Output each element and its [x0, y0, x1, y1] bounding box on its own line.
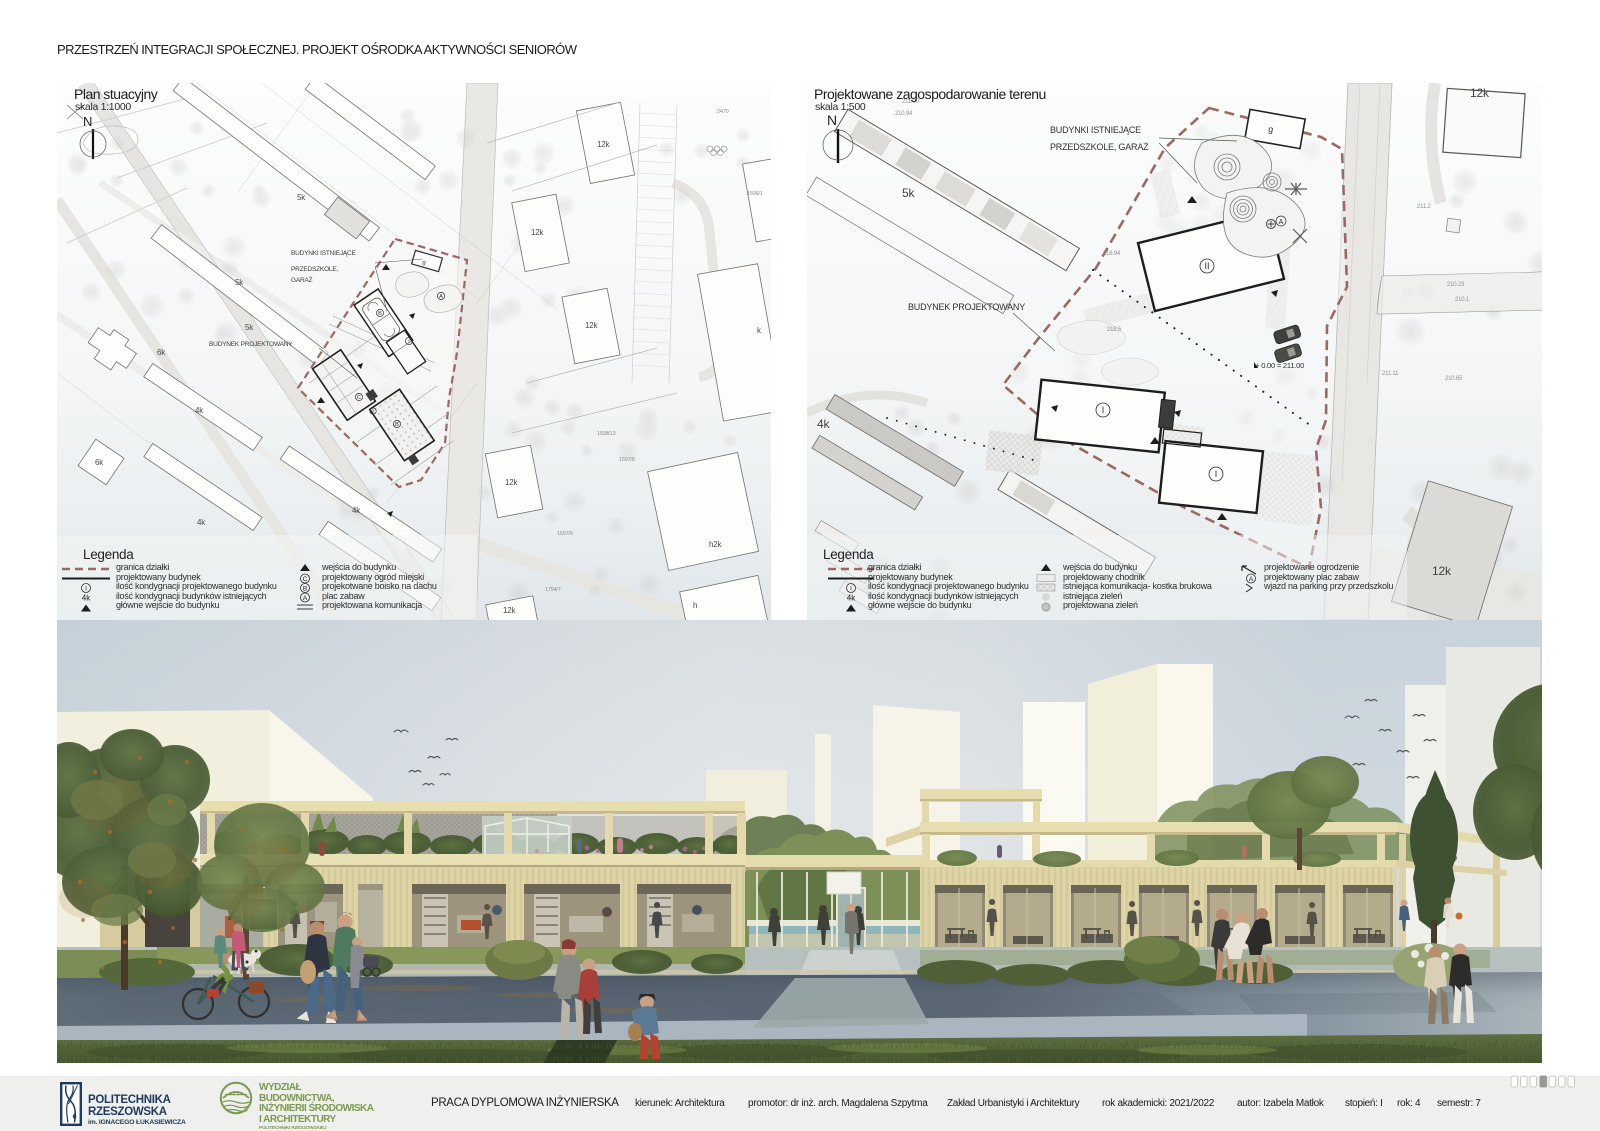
svg-text:12k: 12k	[1432, 564, 1452, 578]
svg-text:4k: 4k	[352, 506, 361, 515]
svg-text:5k: 5k	[297, 193, 306, 202]
svg-text:BUDYNEK PROJEKTOWANY: BUDYNEK PROJEKTOWANY	[908, 302, 1025, 312]
svg-text:A: A	[1279, 219, 1284, 226]
svg-text:B: B	[395, 422, 399, 428]
svg-text:A: A	[1249, 576, 1254, 583]
svg-text:I: I	[85, 586, 87, 593]
svg-text:210.1: 210.1	[1455, 297, 1470, 303]
svg-text:B: B	[378, 311, 382, 317]
svg-text:4k: 4k	[195, 406, 204, 415]
svg-text:A: A	[439, 294, 443, 300]
svg-text:1596/1: 1596/1	[747, 191, 763, 197]
svg-text:1754/7: 1754/7	[545, 587, 561, 593]
svg-text:+0.00 = 211.00: +0.00 = 211.00	[1255, 361, 1304, 370]
svg-text:12k: 12k	[585, 321, 598, 330]
svg-text:4k: 4k	[847, 594, 856, 603]
svg-text:PRZEDSZKOLE,: PRZEDSZKOLE,	[291, 266, 338, 273]
svg-text:1597/8: 1597/8	[619, 457, 635, 463]
svg-text:BUDYNEK PROJEKTOWANY: BUDYNEK PROJEKTOWANY	[209, 341, 293, 348]
svg-text:A: A	[303, 595, 308, 602]
svg-text:I: I	[1215, 469, 1218, 479]
svg-text:6k: 6k	[95, 458, 104, 467]
svg-text:12k: 12k	[503, 606, 516, 615]
svg-text:N: N	[827, 112, 837, 128]
svg-text:I: I	[1102, 405, 1105, 415]
svg-text:BUDYNKI ISTNIEJĄCE: BUDYNKI ISTNIEJĄCE	[1050, 125, 1141, 135]
svg-text:I: I	[850, 586, 852, 593]
svg-text:12k: 12k	[505, 478, 518, 487]
svg-text:218.5: 218.5	[1107, 327, 1122, 333]
svg-text:5k: 5k	[235, 278, 244, 287]
svg-text:h: h	[693, 601, 697, 610]
svg-text:B: B	[303, 586, 307, 593]
svg-text:PRZEDSZKOLE, GARAŻ: PRZEDSZKOLE, GARAŻ	[1050, 142, 1149, 152]
svg-text:1597/9: 1597/9	[557, 531, 573, 537]
svg-text:12k: 12k	[531, 228, 544, 237]
svg-text:C: C	[357, 395, 361, 401]
svg-text:4k: 4k	[197, 518, 206, 527]
svg-text:5k: 5k	[245, 323, 254, 332]
svg-text:N: N	[83, 114, 92, 129]
svg-text:4k: 4k	[817, 417, 830, 431]
svg-text:5k: 5k	[902, 186, 915, 200]
svg-text:211.11: 211.11	[1382, 371, 1399, 377]
svg-text:12k: 12k	[1470, 86, 1490, 100]
svg-text:GARAŻ: GARAŻ	[291, 275, 313, 284]
svg-text:2470: 2470	[717, 109, 729, 115]
svg-text:218.94: 218.94	[1103, 251, 1121, 257]
svg-text:4k: 4k	[82, 594, 91, 603]
svg-text:6k: 6k	[157, 348, 166, 357]
svg-text:BUDYNKI ISTNIEJĄCE: BUDYNKI ISTNIEJĄCE	[291, 250, 357, 257]
svg-text:211.2: 211.2	[1417, 204, 1431, 210]
svg-text:210.65: 210.65	[1445, 376, 1463, 382]
svg-text:210.94: 210.94	[895, 111, 913, 117]
svg-text:II: II	[1204, 261, 1209, 271]
svg-text:210.23: 210.23	[1447, 282, 1465, 288]
svg-text:1598/13: 1598/13	[597, 431, 616, 437]
svg-text:h2k: h2k	[709, 540, 722, 549]
svg-text:12k: 12k	[597, 140, 610, 149]
svg-text:C: C	[303, 576, 308, 583]
